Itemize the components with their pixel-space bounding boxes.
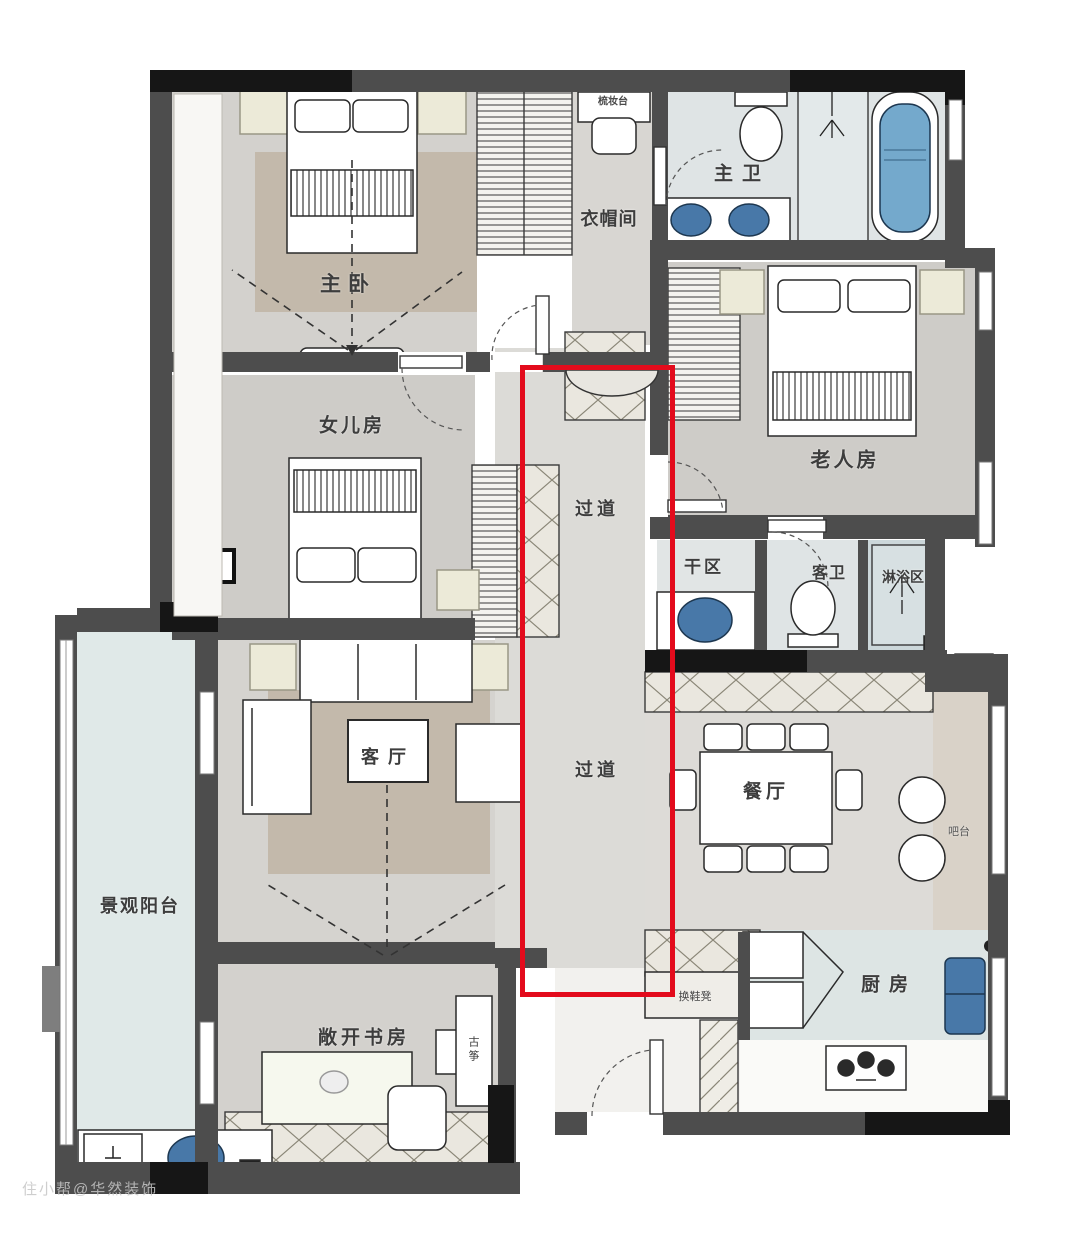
highlight-rectangle [520, 365, 675, 997]
label-living-room: 客厅 [361, 743, 415, 769]
label-dressing-table: 梳妆台 [598, 93, 628, 108]
label-master-bath: 主卫 [714, 159, 770, 186]
label-balcony: 景观阳台 [100, 892, 180, 918]
label-bar-counter: 吧台 [948, 823, 970, 839]
label-cloakroom: 衣帽间 [581, 205, 638, 231]
label-guest-bath: 客卫 [812, 559, 846, 583]
label-corridor-upper: 过道 [575, 495, 619, 521]
label-shoe-bench: 换鞋凳 [679, 988, 712, 1004]
label-dining-room: 餐厅 [743, 777, 789, 804]
label-kitchen: 厨房 [861, 970, 917, 997]
label-elder-room: 老人房 [811, 444, 880, 473]
label-guzheng: 古筝 [465, 1036, 481, 1064]
floor-plan: 主卧 衣帽间 梳妆台 主卫 老人房 女儿房 过道 过道 干区 客卫 淋浴区 客厅… [0, 0, 1080, 1252]
watermark: 住小帮@华然装饰 [22, 1178, 158, 1199]
label-corridor-lower: 过道 [575, 756, 619, 782]
label-shower-area: 淋浴区 [882, 567, 924, 587]
label-study: 敞开书房 [318, 1023, 410, 1050]
label-dry-area: 干区 [684, 553, 724, 578]
label-daughter-room: 女儿房 [319, 411, 385, 438]
label-master-bedroom: 主卧 [320, 268, 376, 298]
